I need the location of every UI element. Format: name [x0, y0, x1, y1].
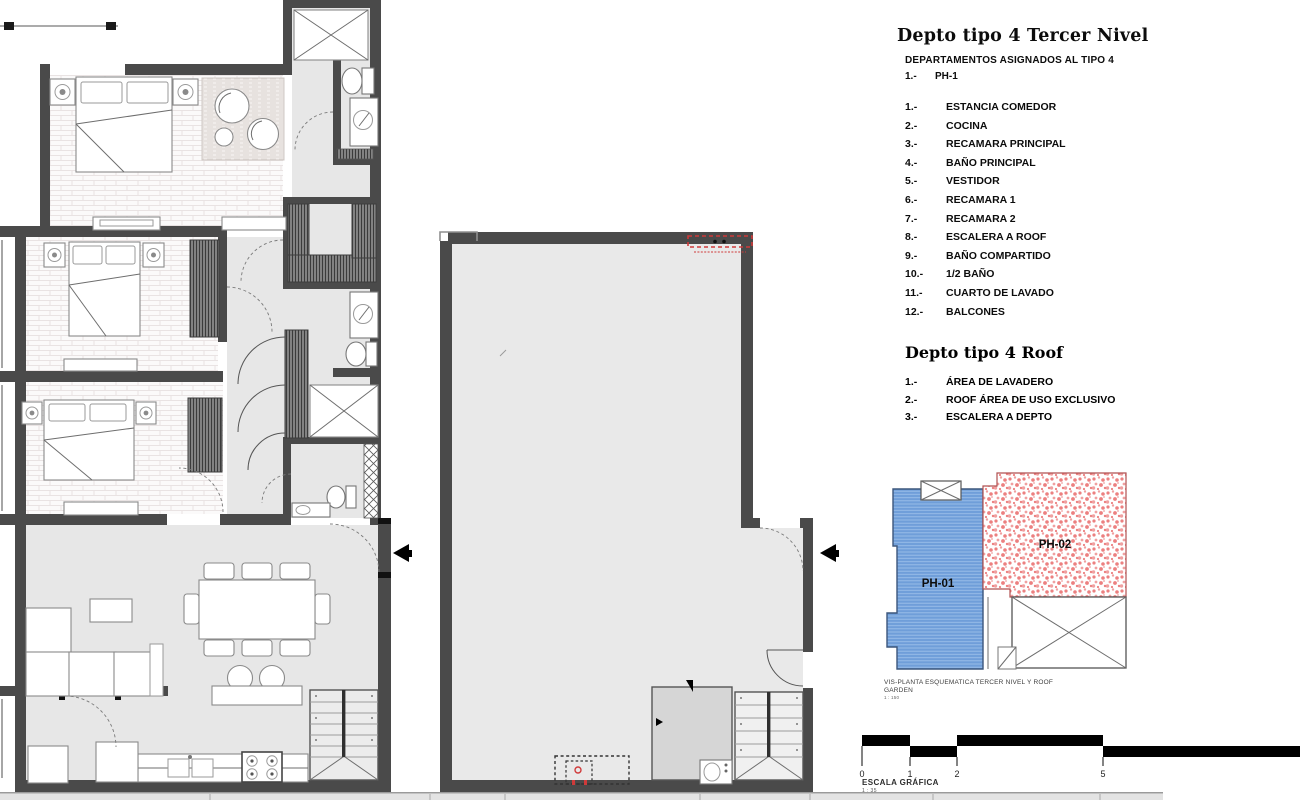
caption-line1: VIS-PLANTA ESQUEMATICA TERCER NIVEL Y RO… — [884, 679, 1053, 687]
schematic-caption: VIS-PLANTA ESQUEMATICA TERCER NIVEL Y RO… — [884, 679, 1053, 702]
floor-plan-sheet: PH-01 PH-02 0 1 2 5 Depto tipo 4 Tercer … — [0, 0, 1300, 800]
caption-scale: 1 : 150 — [884, 694, 1053, 702]
sheet-edge-band — [0, 792, 1163, 800]
legend-assignment: 1.- PH-1 — [905, 71, 1187, 82]
room-label: VESTIDOR — [946, 175, 1000, 187]
plan-tercer-nivel — [0, 0, 412, 792]
room-number: 2.- — [905, 394, 946, 406]
dining-set — [184, 563, 330, 656]
scale-tick-2: 2 — [954, 769, 959, 779]
room-number: 12.- — [905, 306, 946, 318]
legend-subtitle: DEPARTAMENTOS ASIGNADOS AL TIPO 4 — [905, 55, 1187, 66]
bed — [69, 242, 140, 336]
scale-bar: 0 1 2 5 — [859, 735, 1300, 779]
room-label: CUARTO DE LAVADO — [946, 287, 1054, 299]
closet — [188, 398, 222, 472]
room-label: ESTANCIA COMEDOR — [946, 101, 1056, 113]
room-number: 3.- — [905, 138, 946, 150]
washer — [28, 746, 68, 783]
room-number: 8.- — [905, 231, 946, 243]
toilet-icon — [346, 342, 377, 366]
caption-line2: GARDEN — [884, 687, 1053, 695]
ph01-label: PH-01 — [922, 578, 955, 590]
room-label: BAÑO COMPARTIDO — [946, 250, 1051, 262]
armchair — [248, 119, 279, 150]
graphic-scale-label: ESCALA GRÁFICA 1 : 35 — [862, 778, 939, 794]
page-title: Depto tipo 4 Tercer Nivel — [897, 26, 1187, 46]
legend-panel: Depto tipo 4 Tercer Nivel DEPARTAMENTOS … — [897, 26, 1187, 324]
scale-tick-5: 5 — [1100, 769, 1105, 779]
room-number: 5.- — [905, 175, 946, 187]
lavadero-icon — [700, 760, 732, 784]
room-label: COCINA — [946, 120, 987, 132]
room-label: 1/2 BAÑO — [946, 268, 994, 280]
room-list-item: 10.- 1/2 BAÑO — [905, 268, 1187, 287]
ph02-label: PH-02 — [1039, 539, 1072, 551]
escala-ratio: 1 : 35 — [862, 788, 939, 794]
room-number: 10.- — [905, 268, 946, 280]
toilet-icon — [342, 68, 374, 94]
room-list-item: 5.- VESTIDOR — [905, 175, 1187, 194]
room-number: 1.- — [905, 376, 946, 388]
room-label: ESCALERA A DEPTO — [946, 411, 1052, 423]
room-label: RECAMARA PRINCIPAL — [946, 138, 1066, 150]
roof-room-list: 1.- ÁREA DE LAVADERO 2.- ROOF ÁREA DE US… — [905, 376, 1115, 429]
roof-title: Depto tipo 4 Roof — [905, 343, 1063, 362]
coffee-table — [90, 599, 132, 622]
stove-icon — [242, 752, 282, 782]
bed — [76, 77, 172, 172]
room-list-item: 2.- COCINA — [905, 120, 1187, 139]
fridge — [96, 742, 138, 782]
room-list-item: 1.- ESTANCIA COMEDOR — [905, 101, 1187, 120]
room-label: BALCONES — [946, 306, 1005, 318]
escala-text: ESCALA GRÁFICA — [862, 778, 939, 787]
stairs-down — [310, 690, 378, 780]
room-number: 11.- — [905, 287, 946, 299]
room-list-item: 6.- RECAMARA 1 — [905, 194, 1187, 213]
entry-arrow-icon — [820, 544, 839, 562]
roof-room-item: 2.- ROOF ÁREA DE USO EXCLUSIVO — [905, 394, 1115, 412]
closet — [190, 240, 219, 337]
assignment-num: 1.- — [905, 71, 935, 82]
dresser — [64, 502, 138, 515]
room-label: RECAMARA 2 — [946, 213, 1016, 225]
entry-arrow-icon — [393, 544, 412, 562]
room-list-item: 3.- RECAMARA PRINCIPAL — [905, 138, 1187, 157]
roof-stairs — [735, 692, 803, 780]
ph02-shape — [983, 473, 1126, 597]
room-number: 3.- — [905, 411, 946, 423]
room-list-item: 7.- RECAMARA 2 — [905, 213, 1187, 232]
room-number: 2.- — [905, 120, 946, 132]
schematic-plan: PH-01 PH-02 — [887, 473, 1126, 669]
room-label: ESCALERA A ROOF — [946, 231, 1046, 243]
armchair — [215, 89, 249, 123]
room-number: 9.- — [905, 250, 946, 262]
sink-icon — [168, 759, 189, 777]
room-list-item: 9.- BAÑO COMPARTIDO — [905, 250, 1187, 269]
shaft — [364, 444, 378, 518]
room-list-item: 4.- BAÑO PRINCIPAL — [905, 157, 1187, 176]
room-list-item: 11.- CUARTO DE LAVADO — [905, 287, 1187, 306]
room-label: ÁREA DE LAVADERO — [946, 376, 1053, 388]
console — [222, 217, 286, 230]
room-label: BAÑO PRINCIPAL — [946, 157, 1036, 169]
bano-compartido — [346, 292, 378, 366]
room-list-item: 8.- ESCALERA A ROOF — [905, 231, 1187, 250]
toilet-icon — [327, 486, 356, 508]
assignment-label: PH-1 — [935, 71, 958, 82]
dining-table — [199, 580, 315, 639]
room-number: 7.- — [905, 213, 946, 225]
room-label: RECAMARA 1 — [946, 194, 1016, 206]
room-number: 1.- — [905, 101, 946, 113]
sink-icon — [350, 292, 378, 338]
room-number: 4.- — [905, 157, 946, 169]
room-label: ROOF ÁREA DE USO EXCLUSIVO — [946, 394, 1115, 406]
room-list: 1.- ESTANCIA COMEDOR 2.- COCINA 3.- RECA… — [905, 101, 1187, 324]
dresser — [64, 359, 137, 371]
plan-roof — [440, 232, 839, 792]
room-number: 6.- — [905, 194, 946, 206]
kitchen-counter — [138, 752, 308, 782]
bed — [44, 400, 134, 480]
room-list-item: 12.- BALCONES — [905, 306, 1187, 325]
side-table — [215, 128, 233, 146]
roof-room-item: 3.- ESCALERA A DEPTO — [905, 411, 1115, 429]
roof-room-item: 1.- ÁREA DE LAVADERO — [905, 376, 1115, 394]
sink-icon — [350, 98, 378, 146]
